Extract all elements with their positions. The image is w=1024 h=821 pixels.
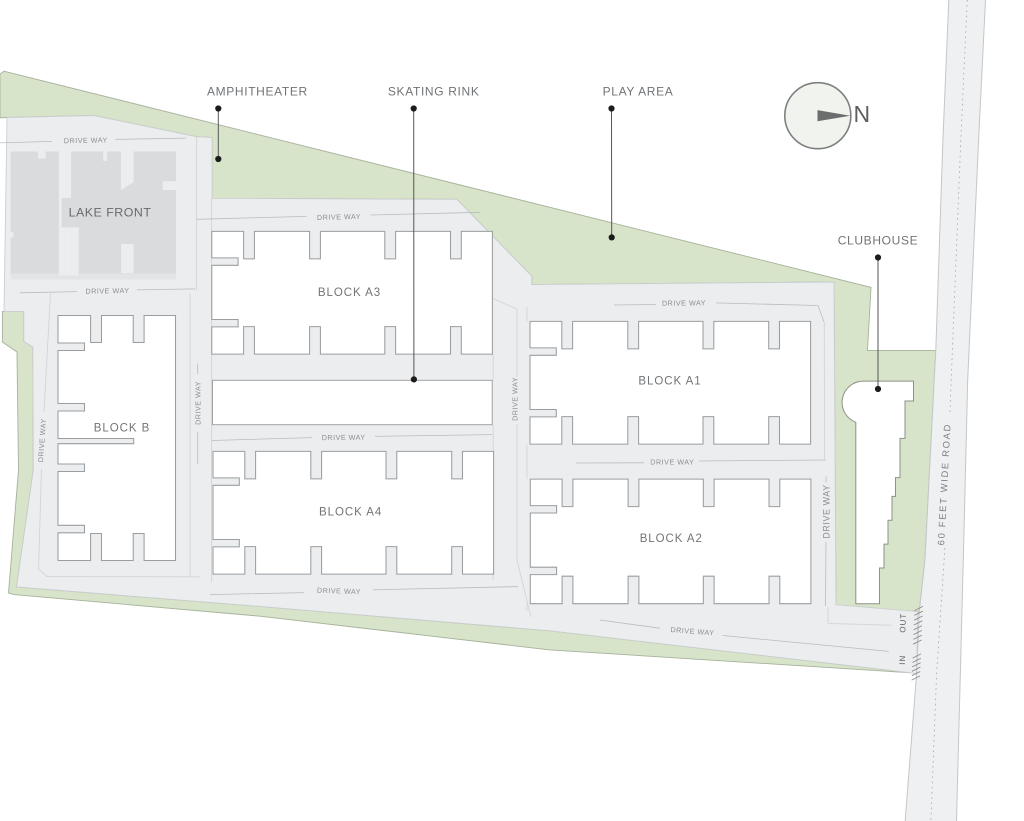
- svg-text:BLOCK A1: BLOCK A1: [638, 376, 701, 388]
- svg-text:DRIVE WAY: DRIVE WAY: [64, 135, 108, 145]
- svg-text:PLAY AREA: PLAY AREA: [603, 85, 674, 99]
- svg-text:DRIVE WAY: DRIVE WAY: [650, 458, 694, 467]
- svg-text:CLUBHOUSE: CLUBHOUSE: [838, 234, 919, 248]
- svg-text:BLOCK A2: BLOCK A2: [640, 533, 703, 545]
- svg-text:BLOCK A3: BLOCK A3: [318, 287, 381, 299]
- svg-text:DRIVE WAY: DRIVE WAY: [194, 381, 203, 425]
- svg-text:LAKE FRONT: LAKE FRONT: [69, 205, 152, 219]
- svg-text:DRIVE WAY: DRIVE WAY: [662, 298, 706, 307]
- svg-text:BLOCK B: BLOCK B: [94, 422, 151, 434]
- svg-text:SKATING RINK: SKATING RINK: [388, 85, 480, 99]
- svg-text:DRIVE WAY: DRIVE WAY: [85, 286, 129, 296]
- svg-text:DRIVE WAY: DRIVE WAY: [317, 212, 361, 222]
- svg-text:DRIVE WAY: DRIVE WAY: [317, 586, 361, 597]
- svg-text:DRIVE WAY: DRIVE WAY: [322, 433, 366, 442]
- svg-text:BLOCK A4: BLOCK A4: [319, 507, 382, 519]
- svg-text:DRIVE WAY: DRIVE WAY: [822, 484, 832, 538]
- svg-text:OUT: OUT: [898, 613, 908, 633]
- svg-text:DRIVE WAY: DRIVE WAY: [510, 377, 519, 421]
- svg-text:IN: IN: [898, 655, 907, 665]
- svg-text:AMPHITHEATER: AMPHITHEATER: [207, 85, 308, 99]
- svg-text:N: N: [854, 101, 871, 127]
